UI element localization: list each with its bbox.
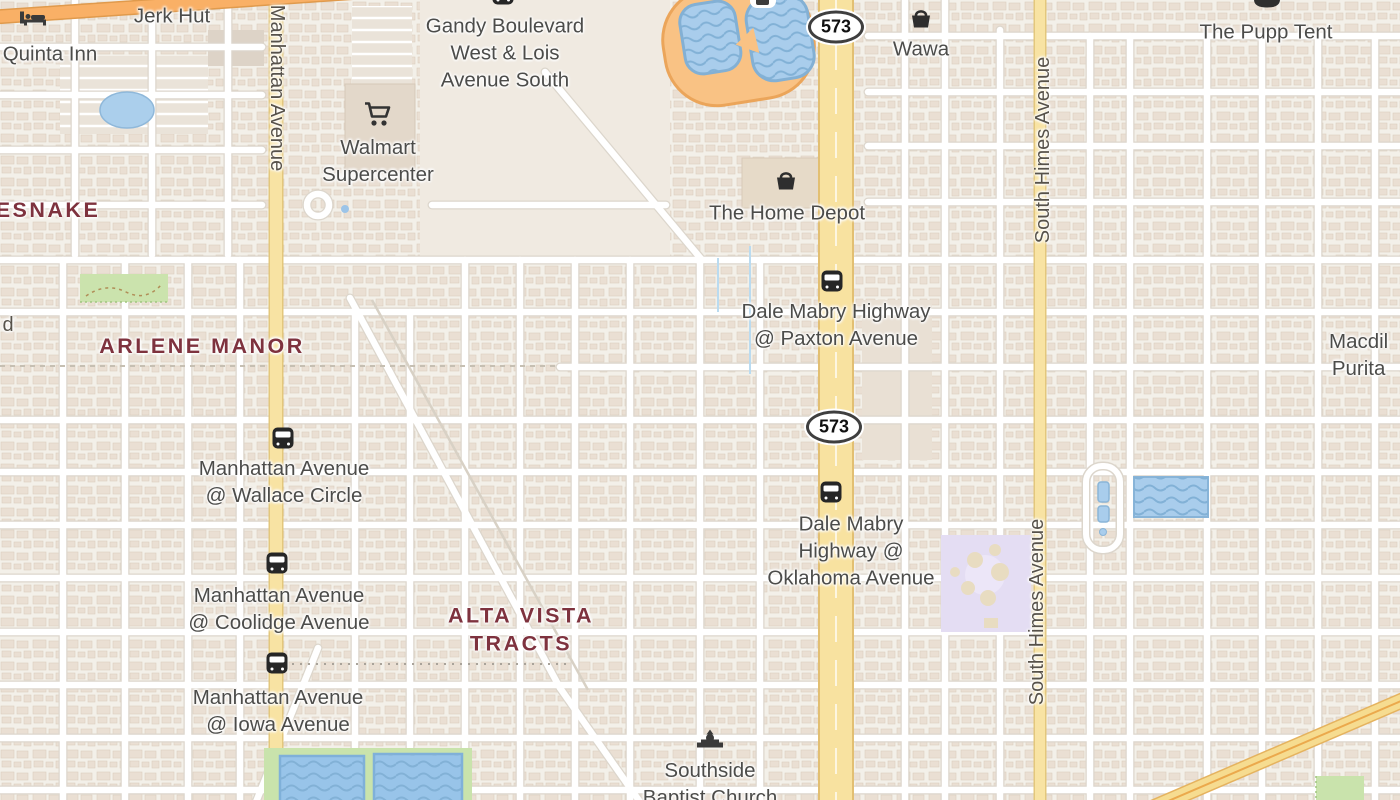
poi-label-pupp-tent: The Pupp Tent: [1200, 18, 1333, 45]
shopping-cart-icon: [363, 102, 393, 133]
bus-icon: [273, 428, 294, 449]
neighborhood-label-alta-vista-tracts: ALTA VISTA TRACTS: [448, 602, 594, 659]
street-label-manhattan-avenue: Manhattan Avenue: [264, 5, 290, 171]
poi-label-jerk-hut: Jerk Hut: [134, 2, 210, 29]
poi-label-quinta-inn: Quinta Inn: [3, 40, 98, 67]
shopping-basket-icon: [909, 8, 933, 35]
base-map: [0, 0, 1400, 800]
bus-icon: [821, 482, 842, 503]
neighborhood-label-rattlesnake-partial: ESNAKE: [0, 196, 100, 224]
bus-icon: [493, 0, 514, 5]
bus-stop-label-paxton: Dale Mabry Highway @ Paxton Avenue: [741, 298, 930, 352]
route-shield-573: 573: [806, 411, 862, 444]
tent-icon: [1254, 0, 1280, 13]
hotel-bed-icon: [19, 10, 47, 33]
map-canvas[interactable]: 573 573 Jerk Hut Quinta Inn Walmart Supe…: [0, 0, 1400, 800]
bus-stop-label-iowa: Manhattan Avenue @ Iowa Avenue: [193, 684, 364, 738]
shopping-basket-icon: [774, 170, 798, 197]
street-label-south-himes-avenue: South Himes Avenue: [1030, 57, 1056, 243]
bus-stop-label-coolidge: Manhattan Avenue @ Coolidge Avenue: [188, 582, 369, 636]
bus-icon: [267, 553, 288, 574]
bus-icon: [267, 653, 288, 674]
bus-stop-label-gandy-lois: Gandy Boulevard West & Lois Avenue South: [426, 12, 584, 93]
street-label-south-himes-avenue: South Himes Avenue: [1024, 519, 1050, 705]
poi-label-home-depot: The Home Depot: [709, 199, 865, 226]
school-area: [941, 535, 1031, 632]
bus-stop-label-oklahoma: Dale Mabry Highway @ Oklahoma Avenue: [767, 510, 934, 591]
bus-icon: [822, 271, 843, 292]
bus-stop-label-wallace-circle: Manhattan Avenue @ Wallace Circle: [199, 455, 370, 509]
neighborhood-label-arlene-manor: ARLENE MANOR: [99, 332, 305, 360]
poi-label-walmart-supercenter: Walmart Supercenter: [322, 134, 434, 188]
poi-label-wawa: Wawa: [893, 35, 949, 62]
route-shield-573: 573: [808, 11, 864, 44]
poi-label-southside-baptist-church: Southside Baptist Church: [643, 757, 777, 800]
poi-label-macdill-partial: Macdil Purita: [1329, 328, 1388, 382]
church-icon: [697, 730, 723, 755]
street-label-partial-left: d: [2, 312, 13, 338]
